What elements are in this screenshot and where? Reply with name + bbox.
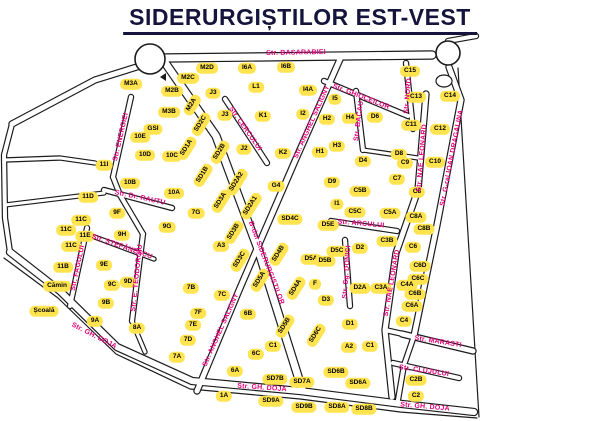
building-block-11b: 11B <box>53 262 73 273</box>
building-block-m2c: M2C <box>177 73 199 84</box>
building-block-c5a: C5A <box>379 208 400 219</box>
building-block-sd8a: SD8A <box>324 402 349 413</box>
building-block-1a: 1A <box>216 391 232 402</box>
traffic-island <box>436 75 452 87</box>
building-block-9b: 9B <box>98 298 114 309</box>
building-block-h1: H1 <box>312 147 328 158</box>
building-block-i6a: I6A <box>238 63 256 74</box>
building-block-a2: A2 <box>341 342 357 353</box>
building-block-d2a: D2A <box>349 283 370 294</box>
building-block-10e: 10E <box>130 132 150 143</box>
building-block-c1: C1 <box>362 341 378 352</box>
building-block-7e: 7E <box>185 320 201 331</box>
building-block-d9: D9 <box>324 177 340 188</box>
building-block-9c: 9C <box>104 280 120 291</box>
building-block-9e: 9E <box>96 260 112 271</box>
building-block-sd9b: SD9B <box>291 402 316 413</box>
building-block-c8b: C8B <box>413 224 434 235</box>
building-block-6b: 6B <box>240 309 256 320</box>
building-block-sd9a: SD9A <box>258 396 283 407</box>
building-block-c4: C4 <box>396 316 412 327</box>
building-block-c6b: C6B <box>404 289 425 300</box>
building-block-7c: 7C <box>214 290 230 301</box>
building-block-d4: D4 <box>355 156 371 167</box>
building-block-c6a: C6A <box>401 301 422 312</box>
roundabout <box>436 41 460 65</box>
building-block-c11: C11 <box>401 120 421 131</box>
building-block-c10: C10 <box>425 157 445 168</box>
building-block-l1: L1 <box>248 82 264 93</box>
building-block-d3: D3 <box>318 295 334 306</box>
building-block-f: F <box>309 279 321 290</box>
building-block-m2b: M2B <box>161 86 183 97</box>
building-block-i4a: I4A <box>299 85 317 96</box>
building-block-7b: 7B <box>183 283 199 294</box>
building-block-11i: 11I <box>96 160 113 171</box>
building-block-c5c: C5C <box>344 207 365 218</box>
building-block-7g: 7G <box>188 208 205 219</box>
building-block-10a: 10A <box>164 188 184 199</box>
building-block-c6: C6 <box>405 242 421 253</box>
building-block-h2: H2 <box>319 114 335 125</box>
building-block-10b: 10B <box>120 178 140 189</box>
building-block-9h: 9H <box>114 230 130 241</box>
building-block-i6b: I6B <box>277 62 295 73</box>
building-block-c15: C15 <box>400 66 420 77</box>
building-block-sd6a: SD6A <box>345 378 370 389</box>
building-block-k1: K1 <box>255 111 271 122</box>
building-block-d1: D1 <box>342 319 358 330</box>
building-block-c5b: C5B <box>349 186 370 197</box>
road <box>4 124 12 252</box>
roundabout <box>135 44 165 74</box>
building-block-i2: I2 <box>296 109 309 120</box>
building-block-sd8b: SD8B <box>351 404 376 415</box>
building-block-sd4c: SD4C <box>277 214 302 225</box>
building-block-9g: 9G <box>159 222 176 233</box>
building-block-g4: G4 <box>268 181 285 192</box>
road-network <box>0 0 600 421</box>
building-block-d5b: D5B <box>314 256 335 267</box>
building-block-6a: 6A <box>227 366 243 377</box>
building-block-11d: 11D <box>78 192 98 203</box>
building-block-k2: K2 <box>275 148 291 159</box>
building-block-sd7b: SD7B <box>262 374 287 385</box>
building-block-cămin: Cămin <box>43 281 71 292</box>
building-block-d2: D2 <box>352 243 368 254</box>
building-block-8a: 8A <box>129 323 145 334</box>
building-block-școală: Școală <box>30 306 59 317</box>
building-block-c8a: C8A <box>405 212 426 223</box>
building-block-c9: C9 <box>397 158 413 169</box>
building-block-c6d: C6D <box>409 261 430 272</box>
building-block-d5e: D5E <box>318 220 339 231</box>
building-block-c12: C12 <box>430 124 450 135</box>
building-block-9a: 9A <box>87 316 103 327</box>
building-block-7f: 7F <box>190 308 206 319</box>
triangle-marker <box>160 73 166 81</box>
building-block-10d: 10D <box>135 150 155 161</box>
city-map: M3AM2DM2CM2BM2AM3BSD2CGSI10E11I10D10CSD1… <box>0 0 600 421</box>
building-block-6c: 6C <box>248 349 264 360</box>
building-block-m2d: M2D <box>196 63 218 74</box>
building-block-m3b: M3B <box>158 107 180 118</box>
building-block-c2b: C2B <box>405 375 426 386</box>
building-block-h3: H3 <box>329 141 345 152</box>
road <box>448 36 476 41</box>
building-block-j3: J3 <box>205 88 220 99</box>
building-block-i1: I1 <box>330 199 343 210</box>
building-block-d6: D6 <box>367 112 383 123</box>
page-title: SIDERURGIȘTILOR EST-VEST <box>123 4 477 35</box>
building-block-11c: 11C <box>56 225 76 236</box>
building-block-i5: I5 <box>328 94 341 105</box>
building-block-m3a: M3A <box>120 79 142 90</box>
building-block-c7: C7 <box>389 174 405 185</box>
building-block-c14: C14 <box>440 91 460 102</box>
building-block-j2: J2 <box>236 144 251 155</box>
building-block-c2: C2 <box>408 391 424 402</box>
building-block-sd7a: SD7A <box>289 377 314 388</box>
building-block-c3b: C3B <box>376 236 397 247</box>
building-block-9f: 9F <box>109 208 125 219</box>
street-label: Str. BASARABIEI <box>266 49 326 57</box>
building-block-7a: 7A <box>169 352 185 363</box>
building-block-11c: 11C <box>71 215 91 226</box>
building-block-c1: C1 <box>265 341 281 352</box>
building-block-sd6b: SD6B <box>323 367 348 378</box>
building-block-7d: 7D <box>180 335 196 346</box>
